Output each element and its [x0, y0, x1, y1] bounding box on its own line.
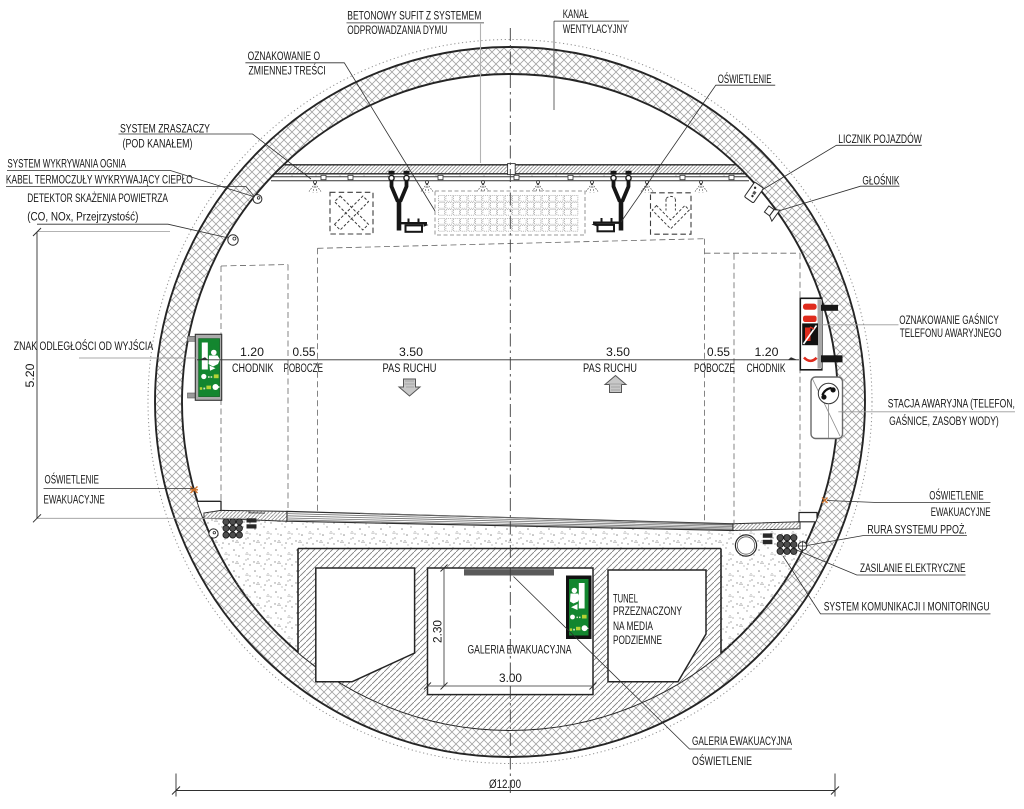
svg-text:ODPROWADZANIA DYMU: ODPROWADZANIA DYMU: [347, 25, 447, 37]
svg-text:WENTYLACYJNY: WENTYLACYJNY: [563, 24, 628, 36]
svg-text:ZNAK ODLEGŁOŚCI OD WYJŚCIA: ZNAK ODLEGŁOŚCI OD WYJŚCIA: [14, 340, 154, 353]
svg-text:OZNAKOWANIE GAŚNICY: OZNAKOWANIE GAŚNICY: [899, 314, 999, 327]
svg-text:1.20: 1.20: [755, 347, 779, 359]
svg-text:POBOCZE: POBOCZE: [284, 363, 324, 375]
svg-text:OŚWIETLENIE: OŚWIETLENIE: [929, 489, 984, 502]
svg-text:POBOCZE: POBOCZE: [694, 363, 735, 375]
svg-text:GALERIA EWAKUACYJNA: GALERIA EWAKUACYJNA: [692, 736, 792, 748]
svg-text:PAS RUCHU: PAS RUCHU: [583, 363, 637, 375]
svg-text:TELEFONU AWARYJNEGO: TELEFONU AWARYJNEGO: [900, 328, 1002, 340]
svg-text:EWAKUACYJNE: EWAKUACYJNE: [44, 494, 106, 506]
svg-text:EWAKUACYJNE: EWAKUACYJNE: [931, 507, 991, 519]
svg-text:5.20: 5.20: [25, 364, 37, 388]
svg-text:GALERIA EWAKUACYJNA: GALERIA EWAKUACYJNA: [468, 645, 572, 657]
svg-text:3.50: 3.50: [399, 347, 423, 359]
svg-text:SYSTEM KOMUNIKACJI I MONITORIN: SYSTEM KOMUNIKACJI I MONITORINGU: [824, 601, 990, 613]
svg-text:(POD KANAŁEM): (POD KANAŁEM): [123, 139, 193, 151]
svg-text:DETEKTOR SKAŻENIA POWIETRZA: DETEKTOR SKAŻENIA POWIETRZA: [27, 192, 168, 205]
svg-text:GŁOŚNIK: GŁOŚNIK: [862, 174, 899, 187]
svg-text:PRZEZNACZONY: PRZEZNACZONY: [613, 606, 682, 618]
svg-text:Ø12.00: Ø12.00: [489, 779, 521, 791]
svg-text:SYSTEM WYKRYWANIA OGNIA: SYSTEM WYKRYWANIA OGNIA: [7, 158, 126, 170]
svg-text:OZNAKOWANIE O: OZNAKOWANIE O: [248, 51, 321, 63]
svg-text:CHODNIK: CHODNIK: [747, 363, 786, 375]
svg-text:(CO, NOx, Przejrzystość): (CO, NOx, Przejrzystość): [27, 212, 138, 224]
svg-text:NA MEDIA: NA MEDIA: [613, 621, 653, 633]
svg-text:PAS RUCHU: PAS RUCHU: [383, 363, 437, 375]
svg-text:ZASILANIE ELEKTRYCZNE: ZASILANIE ELEKTRYCZNE: [860, 563, 966, 575]
svg-text:STACJA AWARYJNA (TELEFON,: STACJA AWARYJNA (TELEFON,: [888, 399, 1015, 411]
svg-text:TUNEL: TUNEL: [613, 593, 638, 605]
svg-text:BETONOWY SUFIT Z SYSTEMEM: BETONOWY SUFIT Z SYSTEMEM: [347, 11, 481, 23]
svg-text:RURA SYSTEMU PPOŻ.: RURA SYSTEMU PPOŻ.: [867, 523, 967, 536]
svg-text:OŚWIETLENIE: OŚWIETLENIE: [692, 755, 752, 768]
svg-text:0.55: 0.55: [293, 347, 316, 359]
svg-text:1.20: 1.20: [240, 347, 264, 359]
svg-text:OŚWIETLENIE: OŚWIETLENIE: [45, 474, 100, 487]
svg-text:GAŚNICE, ZASOBY WODY): GAŚNICE, ZASOBY WODY): [889, 415, 999, 428]
svg-text:0.55: 0.55: [707, 347, 730, 359]
svg-text:ZMIENNEJ TREŚCI: ZMIENNEJ TREŚCI: [249, 65, 326, 78]
svg-text:LICZNIK POJAZDÓW: LICZNIK POJAZDÓW: [838, 133, 922, 146]
svg-text:2.30: 2.30: [433, 620, 445, 643]
svg-text:KABEL TERMOCZUŁY WYKRYWAJĄCY C: KABEL TERMOCZUŁY WYKRYWAJĄCY CIEPŁO: [6, 175, 193, 187]
svg-text:OŚWIETLENIE: OŚWIETLENIE: [718, 73, 772, 86]
svg-text:PODZIEMNE: PODZIEMNE: [613, 635, 662, 647]
svg-text:CHODNIK: CHODNIK: [232, 363, 274, 375]
svg-text:3.50: 3.50: [606, 347, 630, 359]
svg-text:KANAŁ: KANAŁ: [563, 9, 589, 21]
